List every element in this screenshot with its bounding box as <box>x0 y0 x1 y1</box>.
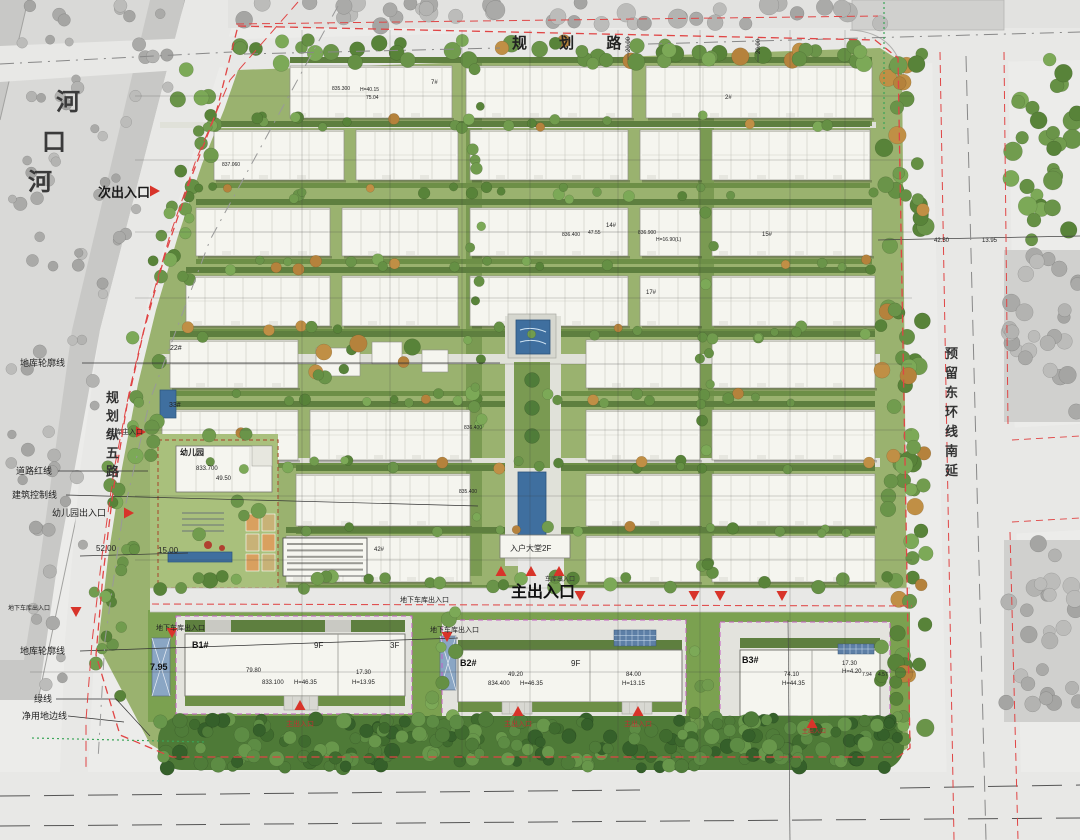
b3-dim4: 4.57 <box>878 672 888 678</box>
dim-20-00-a: 20.00 <box>626 36 632 52</box>
east-road-label: 东 <box>945 385 958 400</box>
b2-9f: 9F <box>571 659 580 668</box>
b1-label: B1# <box>192 640 209 650</box>
river-name: 河 <box>56 89 80 116</box>
kindergarten-level: 833.700 <box>196 466 218 472</box>
dm-7504: 75.04 <box>366 95 379 101</box>
west-road-label: 划 <box>106 409 119 424</box>
garage-outline-label-2: 地库轮廓线 <box>20 645 65 656</box>
site-plan-page: 河口河次出入口规 划 路规划纵五路预留东环线南延地库轮廓线道路红线建筑控制线幼儿… <box>0 0 1080 840</box>
commercial-zone <box>148 588 910 734</box>
east-road-label: 南 <box>945 444 958 459</box>
b1-level: 833.100 <box>262 680 284 686</box>
dm-4755: 47.55 <box>588 230 601 236</box>
ht-4015: H=40.15 <box>360 87 379 93</box>
b3-height2: H=4.20 <box>842 669 862 675</box>
east-road-label: 环 <box>945 405 958 420</box>
lv-836400: 836.400 <box>562 232 580 238</box>
b2-dim2: 84.00 <box>626 672 642 678</box>
site-plan-canvas: 河口河次出入口规 划 路规划纵五路预留东环线南延地库轮廓线道路红线建筑控制线幼儿… <box>0 0 1080 840</box>
dim-20-00-b: 20.00 <box>756 38 762 54</box>
west-road-label: 五 <box>106 446 119 461</box>
dim-15: 15.00 <box>158 546 179 555</box>
b1-height: H=46.35 <box>294 680 318 686</box>
main-entrance-label: 主出入口 <box>511 582 575 601</box>
b1-garage-label: 地下车库出入口 <box>156 623 205 632</box>
road-redline-label: 道路红线 <box>16 465 52 476</box>
entry-lobby-label: 入户大堂2F <box>510 543 551 553</box>
net-site-line-label: 净用地边线 <box>22 710 67 721</box>
b1-height2: H=13.95 <box>352 680 376 686</box>
lv-836400b: 836.400 <box>464 425 482 431</box>
center-garage-label: 地下车库出入口 <box>400 595 449 604</box>
building-b3 <box>740 650 880 716</box>
ht-1690: H=16.90(L) <box>656 237 681 243</box>
bn-22: 22# <box>170 345 182 352</box>
building-b2 <box>458 650 682 702</box>
garage-main-entrance-label: 车库主入口 <box>108 427 143 436</box>
river-name: 口 <box>42 129 66 156</box>
b1-dim2: 17.30 <box>356 670 372 676</box>
green-line-label: 绿线 <box>34 693 52 704</box>
b2-dim-length: 49.20 <box>508 672 524 678</box>
kindergarten-entrance-label: 幼儿园出入口 <box>52 507 106 518</box>
west-road-label: 规 <box>106 390 119 405</box>
lv-837060: 837.060 <box>222 162 240 168</box>
b3-label: B3# <box>742 655 759 665</box>
left-garage-label: 地下车库出入口 <box>8 604 50 612</box>
bn-7: 7# <box>431 80 438 86</box>
b1-main-entrance-label: 主出入口 <box>286 719 314 728</box>
b3-height: H=44.35 <box>782 681 806 687</box>
bn-42: 42# <box>374 547 385 553</box>
west-road-label: 路 <box>106 464 120 479</box>
b3-dim3: 7.94 <box>862 672 872 678</box>
b1-dim-length: 79.80 <box>246 668 262 674</box>
b2-main-entrance-label-2: 主出入口 <box>624 719 652 728</box>
lv-835400: 835.400 <box>459 489 477 495</box>
east-road-label: 留 <box>945 366 958 381</box>
b3-dim-length: 74.10 <box>784 672 800 678</box>
garage-outline-label-1: 地库轮廓线 <box>20 357 65 368</box>
bn-17: 17# <box>646 290 657 296</box>
bn-15: 15# <box>762 232 773 238</box>
dim-13-95: 13.95 <box>982 238 998 244</box>
river-name: 河 <box>28 169 52 196</box>
b2-label: B2# <box>460 658 477 668</box>
b1-9f: 9F <box>314 641 323 650</box>
garage-entrance-small-label: 车库出入口 <box>545 575 575 583</box>
east-road-label: 线 <box>945 424 958 439</box>
dim-52: 52.00 <box>96 544 117 553</box>
b2-height2: H=13.15 <box>622 681 646 687</box>
b1-3f: 3F <box>390 641 399 650</box>
b3-main-entrance-label: 主出入口 <box>802 727 826 735</box>
b3-dim2: 17.30 <box>842 661 858 667</box>
b2-main-entrance-label-1: 主出入口 <box>504 719 532 728</box>
planning-road-label: 规 划 路 <box>512 34 635 52</box>
east-road-label: 延 <box>944 463 959 478</box>
secondary-entrance-label: 次出入口 <box>98 185 150 200</box>
b2-level: 834.400 <box>488 681 510 687</box>
kindergarten-dim: 49.50 <box>216 476 232 482</box>
dim-42-50: 42.50 <box>934 238 950 244</box>
lv-836900: 836.900 <box>638 230 656 236</box>
building-control-line-label: 建筑控制线 <box>12 489 57 500</box>
lv-835300: 835.300 <box>332 86 350 92</box>
dim-7-95: 7.95 <box>150 662 168 672</box>
bn-33: 33# <box>169 402 181 409</box>
b2-garage-label: 地下车库出入口 <box>430 625 479 634</box>
bn-14: 14# <box>606 223 617 229</box>
east-road-label: 预 <box>945 346 958 361</box>
kindergarten-label: 幼儿园 <box>180 447 204 457</box>
bn-2: 2# <box>725 95 732 101</box>
b2-height: H=46.35 <box>520 681 544 687</box>
